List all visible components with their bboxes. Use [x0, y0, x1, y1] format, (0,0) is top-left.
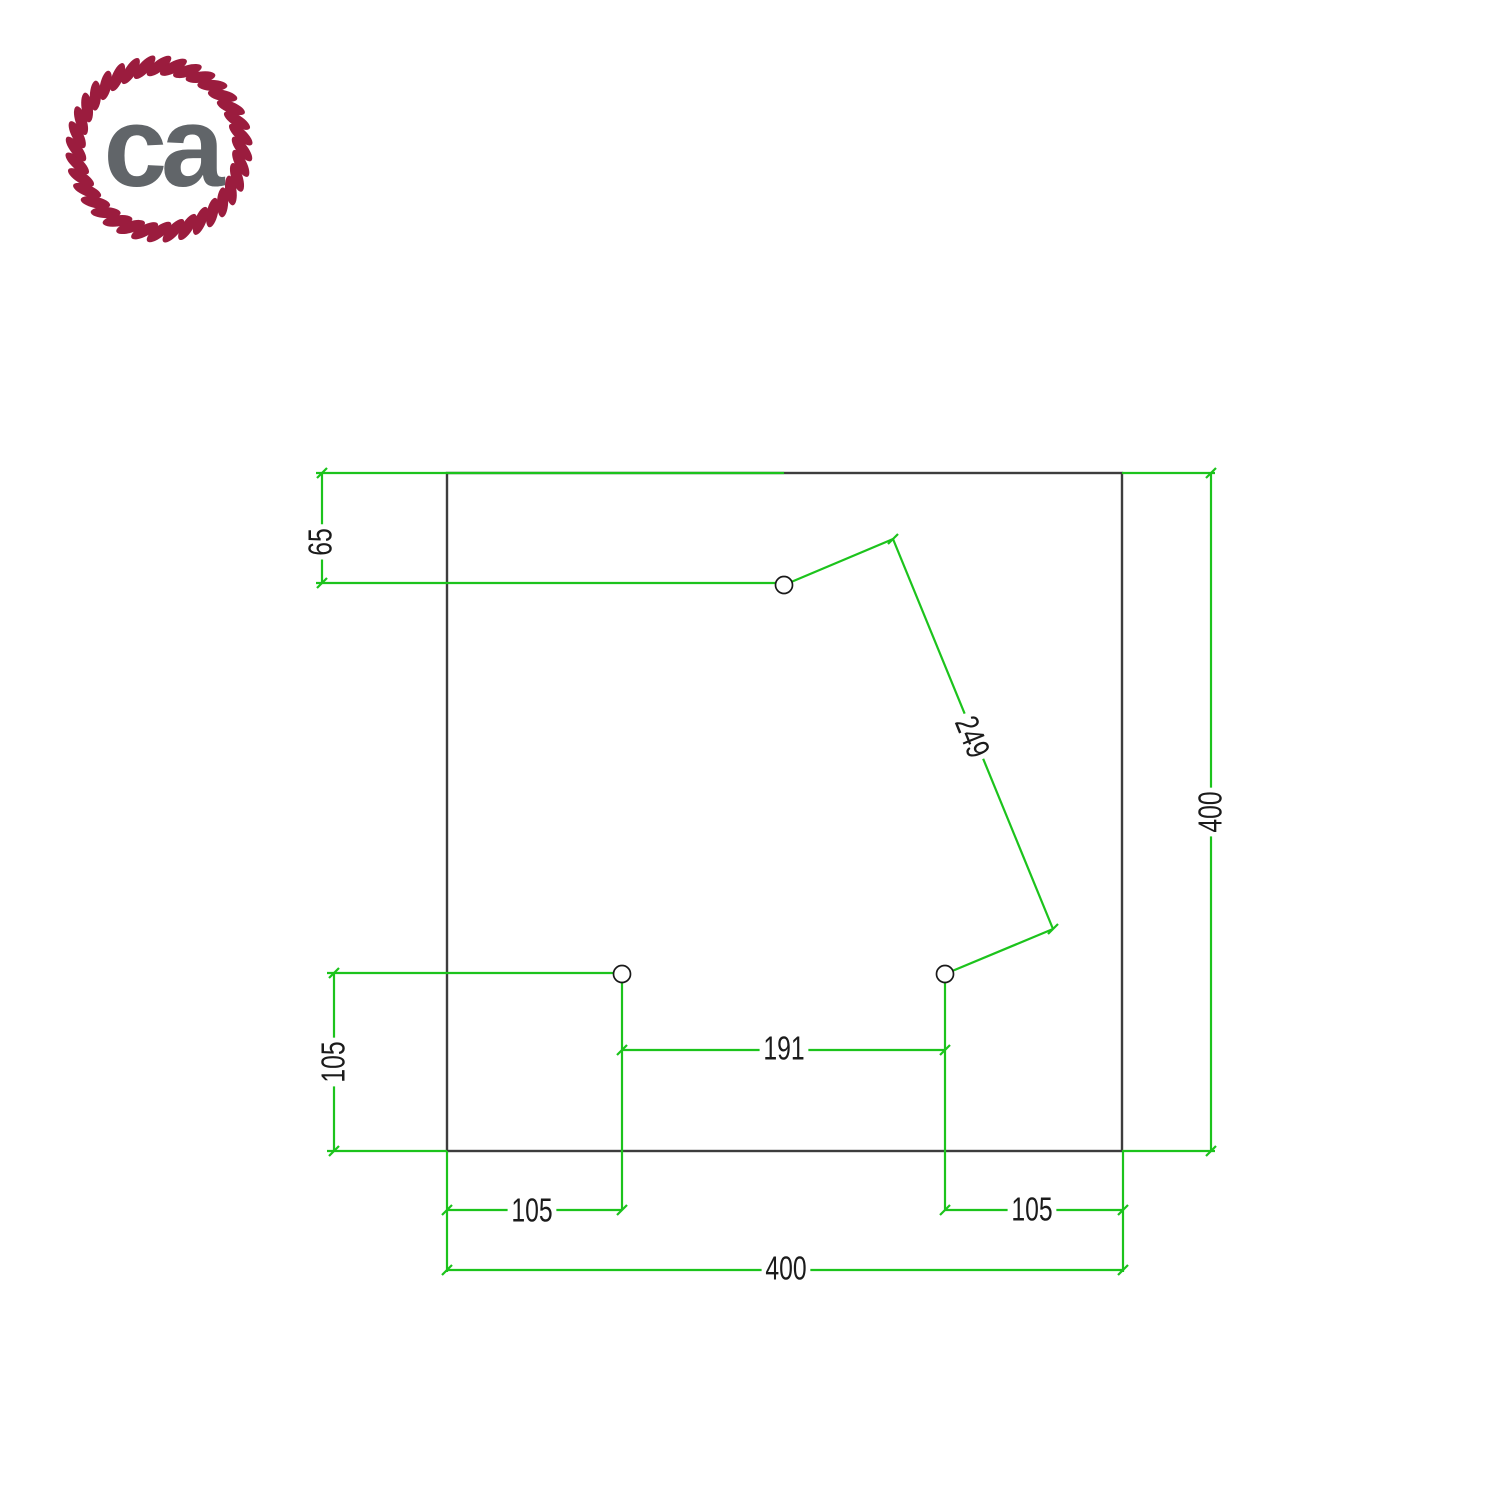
- product-dimension-diagram: ca: [0, 0, 1500, 1500]
- mounting-hole-bottom-right: [937, 966, 954, 983]
- dim-label-right-hole-inset: 105: [1008, 1193, 1057, 1228]
- dimension-lines: [316, 468, 1216, 1275]
- dim-label-left-hole-height: 105: [317, 1038, 352, 1087]
- mounting-hole-top: [776, 577, 793, 594]
- mounting-hole-bottom-left: [614, 966, 631, 983]
- dim-label-plate-height: 400: [1194, 788, 1229, 837]
- ceiling-plate-drawing: [0, 0, 1500, 1500]
- dim-label-left-hole-inset: 105: [508, 1194, 557, 1229]
- dim-label-holes-spacing: 191: [760, 1032, 809, 1067]
- dim-label-top-hole-offset: 65: [304, 524, 339, 559]
- dimension-ticks: [317, 468, 1216, 1275]
- dim-label-plate-width: 400: [762, 1252, 811, 1287]
